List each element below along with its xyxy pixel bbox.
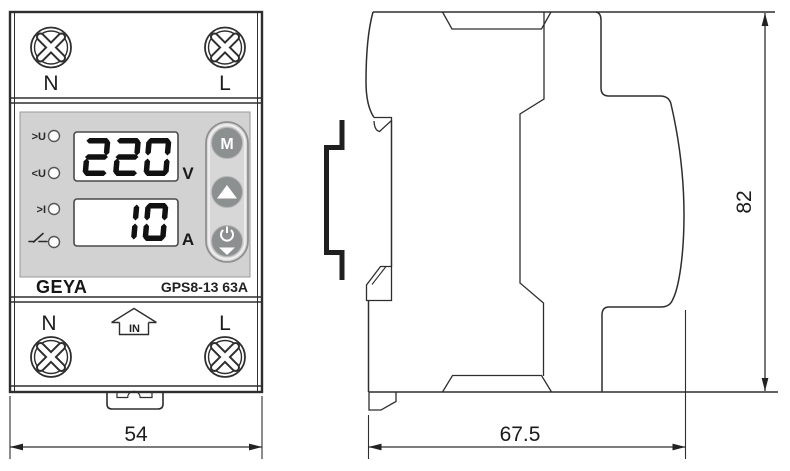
- brand-logo: GEYA: [36, 277, 87, 297]
- arrowhead-right: [673, 444, 686, 451]
- up-button[interactable]: [212, 177, 243, 208]
- housing-seam: [520, 12, 544, 376]
- arrowhead-right: [249, 444, 262, 451]
- dimension-depth-67-5: 67.5: [369, 310, 686, 459]
- indicator-label-under-voltage: <U: [32, 168, 46, 180]
- arrowhead-top: [762, 13, 769, 26]
- technical-drawing-page: N L >U <U >I V A M: [0, 0, 790, 471]
- segment: [83, 171, 106, 177]
- terminal-label-n-bottom: N: [41, 312, 56, 335]
- dimension-depth-value: 67.5: [500, 423, 541, 446]
- current-unit-label: A: [182, 230, 194, 249]
- din-clip-tab-front: [107, 391, 163, 409]
- side-front-profile: [596, 12, 684, 392]
- arrowhead-left: [369, 444, 382, 451]
- terminal-screw-bottom-right: [205, 337, 245, 377]
- arrowhead-left: [10, 444, 23, 451]
- segment: [115, 154, 138, 160]
- rail-catch-notch: [374, 118, 392, 132]
- led-contact-state: [49, 237, 60, 248]
- arrowhead-bottom: [762, 378, 769, 391]
- indicator-label-over-voltage: >U: [32, 131, 46, 143]
- house-in-label: IN: [129, 323, 140, 335]
- din-rail-profile: [327, 120, 343, 280]
- indicator-label-over-current: >I: [37, 204, 46, 216]
- front-view: N L >U <U >I V A M: [10, 12, 262, 409]
- led-under-voltage: [49, 168, 60, 179]
- led-over-current: [49, 204, 60, 215]
- led-over-voltage: [49, 131, 60, 142]
- terminal-label-n-top: N: [43, 72, 58, 95]
- segment: [85, 154, 108, 160]
- power-down-button[interactable]: [212, 226, 243, 257]
- dimension-width-54: 54: [10, 396, 262, 459]
- side-back-top-profile: [366, 12, 374, 118]
- rail-clip-claw: [367, 267, 392, 301]
- terminal-screw-bottom-left: [31, 337, 71, 377]
- model-label: GPS8-13 63A: [161, 279, 248, 295]
- terminal-screw-top-left: [31, 28, 71, 68]
- terminal-label-l-bottom: L: [219, 312, 231, 335]
- segment: [114, 171, 137, 177]
- bottom-terminal-bump: [443, 376, 552, 393]
- mode-button[interactable]: M: [212, 128, 243, 159]
- drawing-canvas: N L >U <U >I V A M: [0, 0, 790, 471]
- clip-release-tab: [369, 392, 396, 410]
- voltage-unit-label: V: [182, 164, 194, 183]
- dimension-height-82: 82: [733, 13, 768, 391]
- dimension-height-value: 82: [733, 190, 756, 213]
- mode-button-label: M: [220, 136, 233, 153]
- terminal-screw-top-right: [205, 28, 245, 68]
- terminal-label-l-top: L: [219, 72, 231, 95]
- dimension-width-value: 54: [124, 423, 148, 446]
- top-terminal-recess: [443, 12, 552, 29]
- side-view: [327, 12, 779, 410]
